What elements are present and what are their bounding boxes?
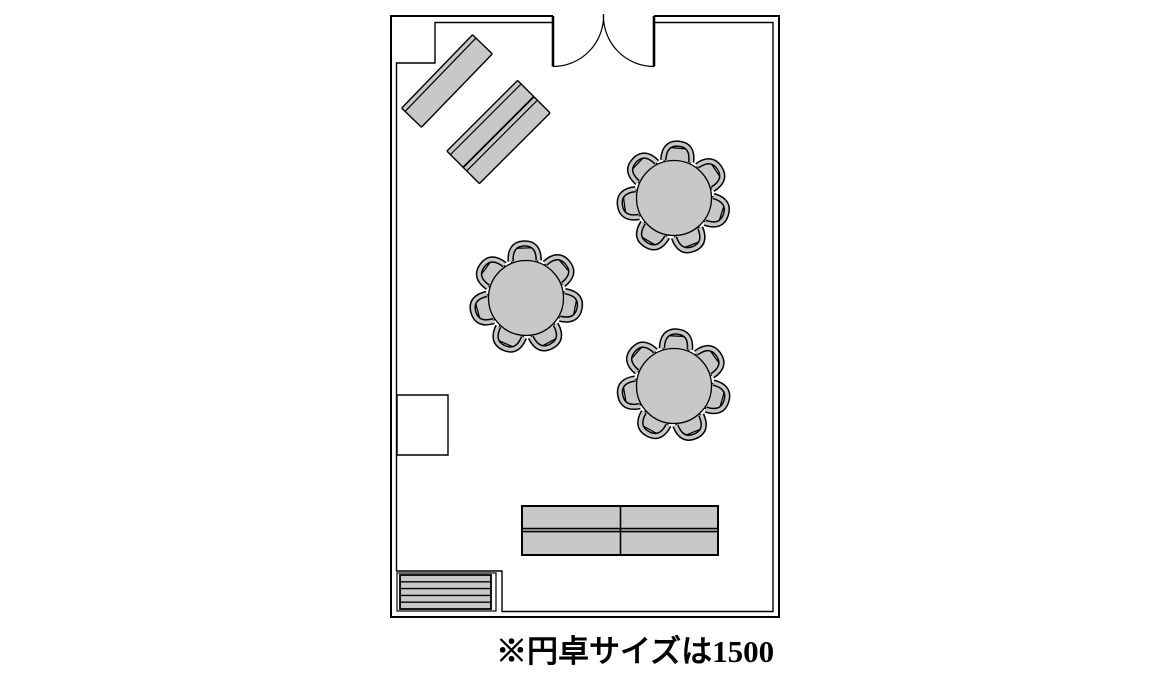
rect-table-diagonal [447,80,550,183]
floor-plan [0,0,1170,680]
page: { "caption": { "text": "※円卓サイズは1500" }, … [0,0,1170,680]
round-table-top [637,161,712,236]
round-table-group [618,142,730,253]
furniture [397,35,730,611]
wall-column [397,395,448,455]
rect-table-diagonal [402,35,493,127]
louver-panel-body [400,575,491,609]
door-swing-arc-left-icon [553,14,604,67]
round-table-group [618,331,730,442]
round-table-group [470,243,582,353]
door-swing-arc-right-icon [603,14,654,67]
louver-panel [397,573,496,611]
round-table-top [637,349,712,424]
caption-round-table-size: ※円卓サイズは1500 [496,626,774,671]
round-table-top [489,261,564,336]
double-door [553,14,654,67]
table-top [402,35,493,127]
rect-table-block [522,506,718,555]
